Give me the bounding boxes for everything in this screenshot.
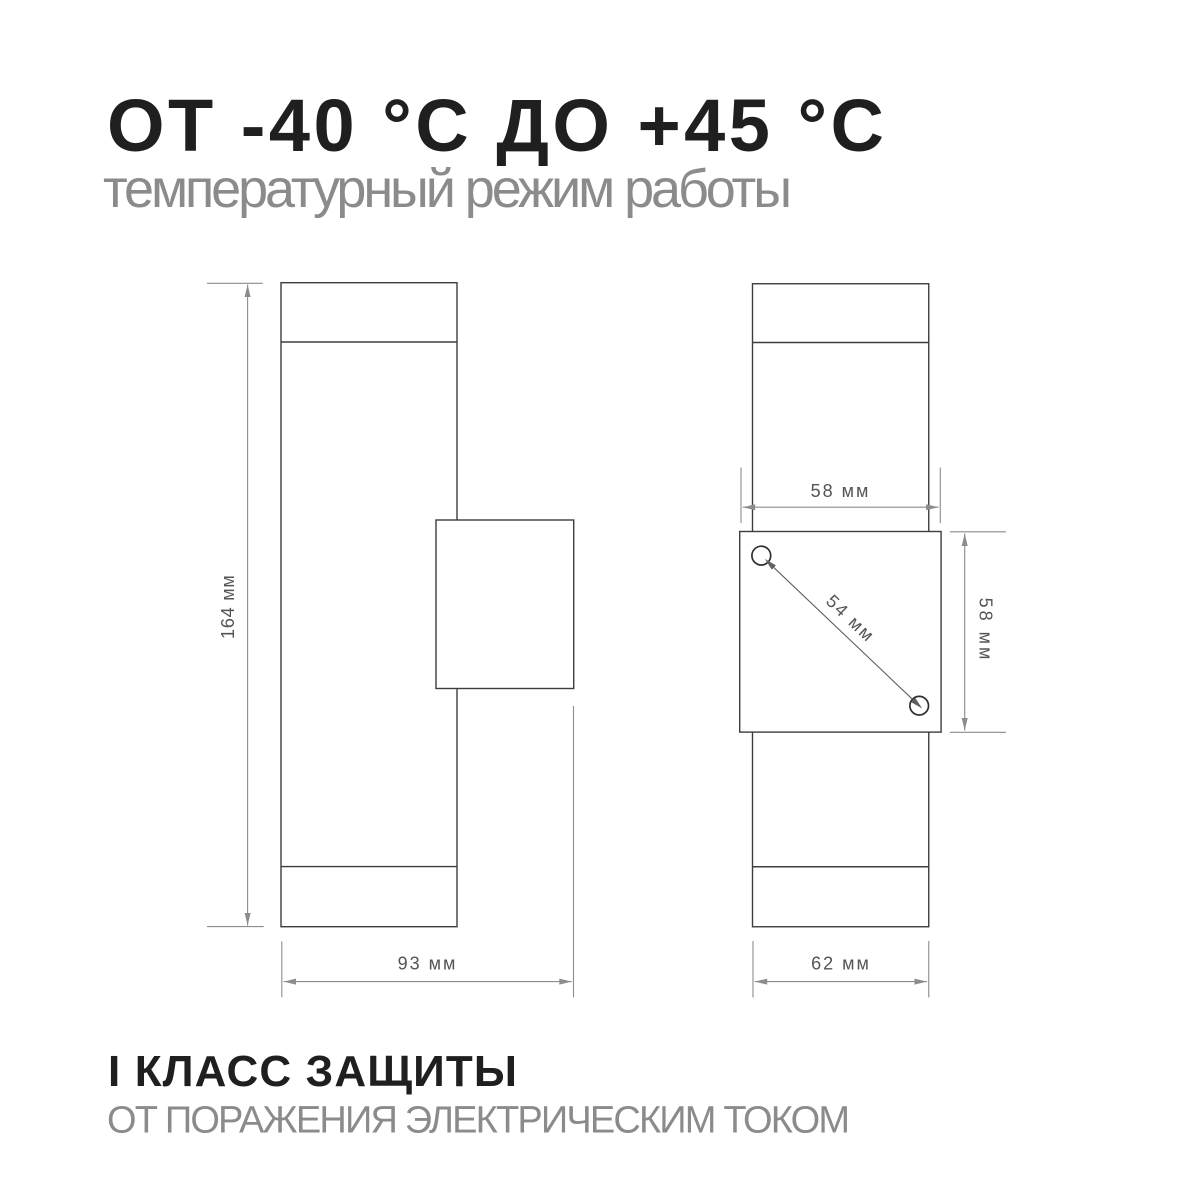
svg-text:ОТ -40 °С ДО +45 °С: ОТ -40 °С ДО +45 °С: [107, 84, 884, 167]
svg-text:93 мм: 93 мм: [398, 953, 458, 973]
svg-text:62 мм: 62 мм: [811, 953, 871, 973]
svg-text:I КЛАСС ЗАЩИТЫ: I КЛАСС ЗАЩИТЫ: [108, 1047, 517, 1096]
svg-text:температурный режим работы: температурный режим работы: [103, 159, 792, 219]
svg-text:58 мм: 58 мм: [811, 481, 871, 501]
svg-text:58 мм: 58 мм: [976, 598, 996, 663]
svg-text:ОТ ПОРАЖЕНИЯ ЭЛЕКТРИЧЕСКИМ ТОК: ОТ ПОРАЖЕНИЯ ЭЛЕКТРИЧЕСКИМ ТОКОМ: [107, 1099, 850, 1141]
svg-text:164 мм: 164 мм: [218, 574, 238, 639]
